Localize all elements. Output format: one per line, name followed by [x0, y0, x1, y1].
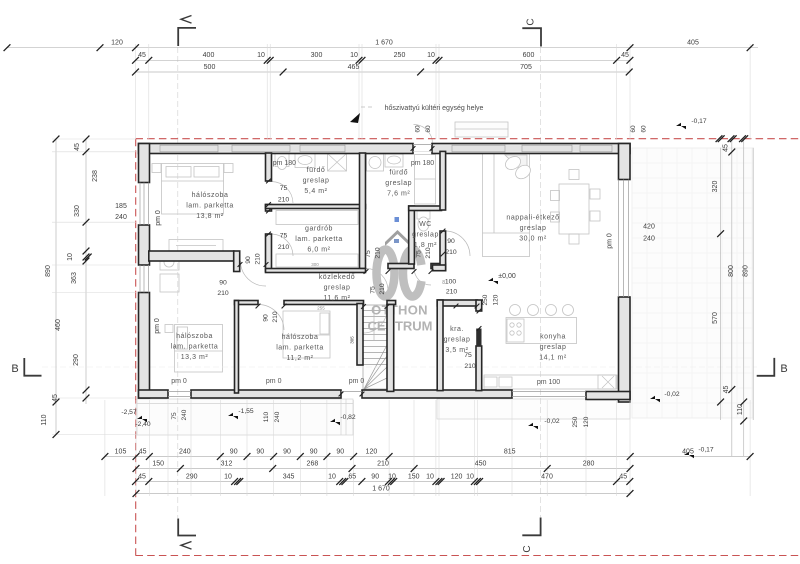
svg-text:210: 210 [278, 244, 290, 251]
svg-text:-0,17: -0,17 [691, 118, 707, 125]
svg-text:890: 890 [743, 265, 750, 277]
svg-text:10: 10 [466, 474, 474, 481]
svg-text:90: 90 [283, 449, 291, 456]
svg-text:210: 210 [446, 289, 458, 296]
svg-text:10: 10 [257, 52, 265, 59]
svg-text:-0,82: -0,82 [340, 414, 356, 421]
svg-text:75: 75 [171, 412, 178, 420]
svg-text:90: 90 [336, 449, 344, 456]
svg-text:60: 60 [415, 125, 422, 133]
svg-text:75: 75 [280, 233, 288, 240]
svg-text:75: 75 [280, 185, 288, 192]
svg-text:pm 0: pm 0 [266, 378, 282, 385]
svg-text:45: 45 [52, 394, 59, 402]
svg-text:pm 100: pm 100 [537, 379, 560, 386]
svg-text:90: 90 [263, 314, 270, 322]
svg-text:500: 500 [204, 64, 216, 71]
svg-text:greslap: greslap [303, 178, 330, 185]
svg-text:11,2 m²: 11,2 m² [286, 355, 313, 362]
svg-text:800: 800 [728, 265, 735, 277]
svg-text:90: 90 [219, 280, 227, 287]
svg-text:210: 210 [379, 283, 386, 295]
svg-text:-0,02: -0,02 [664, 391, 680, 398]
svg-text:300: 300 [311, 262, 319, 267]
svg-text:45: 45 [74, 143, 81, 151]
svg-text:60: 60 [630, 125, 637, 133]
svg-text:240: 240 [643, 236, 655, 243]
svg-text:hőszivattyú kültéri egység hel: hőszivattyú kültéri egység helye [385, 105, 484, 112]
svg-text:405: 405 [687, 40, 699, 47]
svg-text:210: 210 [377, 461, 389, 468]
svg-text:210: 210 [255, 253, 262, 265]
svg-text:240: 240 [115, 214, 127, 221]
svg-text:13,8 m²: 13,8 m² [196, 213, 224, 220]
svg-text:30,0 m²: 30,0 m² [519, 236, 547, 243]
svg-text:greslap: greslap [540, 344, 567, 351]
svg-text:OTTHON: OTTHON [371, 303, 428, 318]
svg-text:45: 45 [723, 386, 730, 394]
svg-text:185: 185 [115, 203, 127, 210]
svg-text:450: 450 [475, 461, 487, 468]
svg-text:-2,40: -2,40 [135, 421, 151, 428]
svg-text:75: 75 [416, 250, 423, 258]
svg-text:400: 400 [203, 52, 215, 59]
svg-text:10: 10 [224, 474, 232, 481]
svg-text:815: 815 [504, 449, 516, 456]
svg-text:90: 90 [371, 474, 379, 481]
svg-text:60: 60 [641, 125, 648, 133]
svg-text:45: 45 [723, 144, 730, 152]
svg-text:110: 110 [41, 414, 48, 425]
svg-text:320: 320 [712, 181, 719, 193]
svg-text:WC: WC [419, 221, 432, 228]
svg-text:nappali-étkező: nappali-étkező [506, 215, 559, 222]
svg-text:lam. parketta: lam. parketta [186, 203, 234, 210]
svg-text:pm 0: pm 0 [155, 210, 162, 226]
svg-text:pm 180: pm 180 [273, 160, 296, 167]
svg-text:lam. parketta: lam. parketta [295, 236, 343, 243]
svg-text:greslap: greslap [520, 225, 547, 232]
svg-text:460: 460 [55, 319, 62, 331]
svg-text:10: 10 [388, 474, 396, 481]
svg-text:90: 90 [256, 449, 264, 456]
svg-text:312: 312 [221, 461, 233, 468]
svg-text:90: 90 [447, 238, 455, 245]
svg-text:75: 75 [365, 250, 372, 258]
svg-text:150: 150 [408, 474, 420, 481]
svg-text:hálószoba: hálószoba [176, 333, 213, 340]
svg-text:890: 890 [45, 265, 52, 277]
svg-text:210: 210 [445, 249, 457, 256]
svg-text:1 670: 1 670 [372, 486, 390, 493]
svg-text:290: 290 [186, 474, 198, 481]
svg-text:10: 10 [426, 474, 434, 481]
svg-text:210: 210 [217, 290, 229, 297]
svg-text:5,4 m²: 5,4 m² [304, 188, 327, 195]
svg-text:75: 75 [370, 286, 377, 294]
svg-text:105: 105 [115, 449, 127, 456]
svg-text:45: 45 [621, 52, 629, 59]
svg-text:pm 0: pm 0 [171, 378, 187, 385]
svg-text:240: 240 [181, 409, 188, 420]
svg-text:705: 705 [520, 64, 532, 71]
svg-text:150: 150 [152, 461, 164, 468]
svg-text:-2,57: -2,57 [121, 409, 137, 416]
svg-text:hálószoba: hálószoba [282, 334, 319, 341]
svg-text:45: 45 [139, 449, 147, 456]
svg-text:13,3 m²: 13,3 m² [181, 354, 209, 361]
svg-text:greslap: greslap [412, 232, 439, 239]
svg-text:greslap: greslap [444, 337, 471, 344]
svg-text:290: 290 [73, 354, 80, 366]
svg-text:1 670: 1 670 [375, 40, 393, 47]
svg-text:600: 600 [523, 52, 535, 59]
svg-text:345: 345 [283, 474, 295, 481]
svg-text:greslap: greslap [385, 180, 412, 187]
svg-text:570: 570 [712, 312, 719, 324]
svg-text:11,6 m²: 11,6 m² [323, 295, 350, 302]
svg-text:pm 0: pm 0 [154, 318, 161, 334]
svg-text:250: 250 [482, 294, 489, 305]
svg-text:gardrób: gardrób [305, 226, 333, 233]
svg-text:60: 60 [425, 125, 432, 133]
svg-text:120: 120 [451, 474, 463, 481]
svg-text:268: 268 [307, 461, 319, 468]
svg-text:120: 120 [493, 294, 500, 305]
svg-text:65: 65 [348, 474, 356, 481]
svg-text:hálószoba: hálószoba [192, 192, 229, 199]
svg-text:120: 120 [583, 416, 590, 427]
svg-text:330: 330 [74, 205, 81, 217]
svg-text:6,0 m²: 6,0 m² [307, 247, 330, 254]
svg-text:90: 90 [245, 256, 252, 264]
svg-text:45: 45 [619, 474, 627, 481]
svg-text:greslap: greslap [324, 285, 351, 292]
svg-text:fürdő: fürdő [389, 170, 408, 177]
svg-text:210: 210 [272, 311, 279, 323]
svg-text:lam. parketta: lam. parketta [171, 344, 219, 351]
svg-text:CENTRUM: CENTRUM [368, 319, 433, 334]
svg-text:210: 210 [425, 247, 432, 259]
svg-text:75: 75 [464, 352, 472, 359]
svg-text:120: 120 [366, 449, 378, 456]
svg-text:250: 250 [394, 52, 406, 59]
svg-text:420: 420 [643, 224, 655, 231]
svg-text:konyha: konyha [540, 334, 566, 341]
svg-text:B: B [780, 363, 787, 375]
svg-text:250: 250 [572, 416, 579, 427]
svg-text:-0,17: -0,17 [698, 447, 714, 454]
svg-text:45: 45 [138, 52, 146, 59]
svg-text:210: 210 [464, 363, 476, 370]
svg-text:238: 238 [92, 170, 99, 182]
svg-text:C: C [526, 18, 537, 25]
svg-text:B: B [11, 363, 18, 375]
svg-text:240: 240 [274, 411, 281, 422]
svg-text:110: 110 [263, 411, 270, 422]
svg-text:110: 110 [737, 404, 744, 415]
svg-text:10: 10 [328, 474, 336, 481]
svg-text:7,6 m²: 7,6 m² [387, 191, 410, 198]
svg-text:240: 240 [179, 449, 191, 456]
svg-text:255: 255 [317, 306, 325, 311]
svg-text:-0,02: -0,02 [544, 418, 560, 425]
svg-text:pm 0: pm 0 [607, 233, 614, 249]
svg-text:10: 10 [67, 253, 74, 261]
svg-text:305: 305 [350, 336, 355, 344]
svg-text:pm 0: pm 0 [349, 378, 365, 385]
svg-text:fürdő: fürdő [307, 167, 326, 174]
svg-text:10: 10 [350, 52, 358, 59]
svg-text:C: C [522, 545, 533, 552]
svg-text:pm 180: pm 180 [411, 160, 434, 167]
svg-text:közlekedő: közlekedő [319, 274, 355, 281]
svg-text:470: 470 [541, 474, 553, 481]
svg-text:210: 210 [278, 197, 290, 204]
svg-text:90: 90 [230, 449, 238, 456]
svg-text:8: 8 [442, 280, 445, 286]
svg-text:300: 300 [311, 52, 323, 59]
svg-text:-1,55: -1,55 [238, 408, 254, 415]
svg-text:45: 45 [138, 474, 146, 481]
svg-text:±0,00: ±0,00 [498, 273, 516, 280]
svg-text:120: 120 [111, 40, 123, 47]
svg-text:465: 465 [348, 64, 360, 71]
svg-text:210: 210 [375, 247, 382, 259]
svg-text:100: 100 [445, 279, 457, 286]
svg-text:363: 363 [71, 272, 78, 284]
svg-text:14,1 m²: 14,1 m² [539, 355, 567, 362]
svg-text:280: 280 [583, 461, 595, 468]
svg-text:lam. parketta: lam. parketta [276, 345, 324, 352]
svg-text:kra.: kra. [450, 326, 464, 333]
svg-text:10: 10 [427, 52, 435, 59]
svg-text:90: 90 [310, 449, 318, 456]
